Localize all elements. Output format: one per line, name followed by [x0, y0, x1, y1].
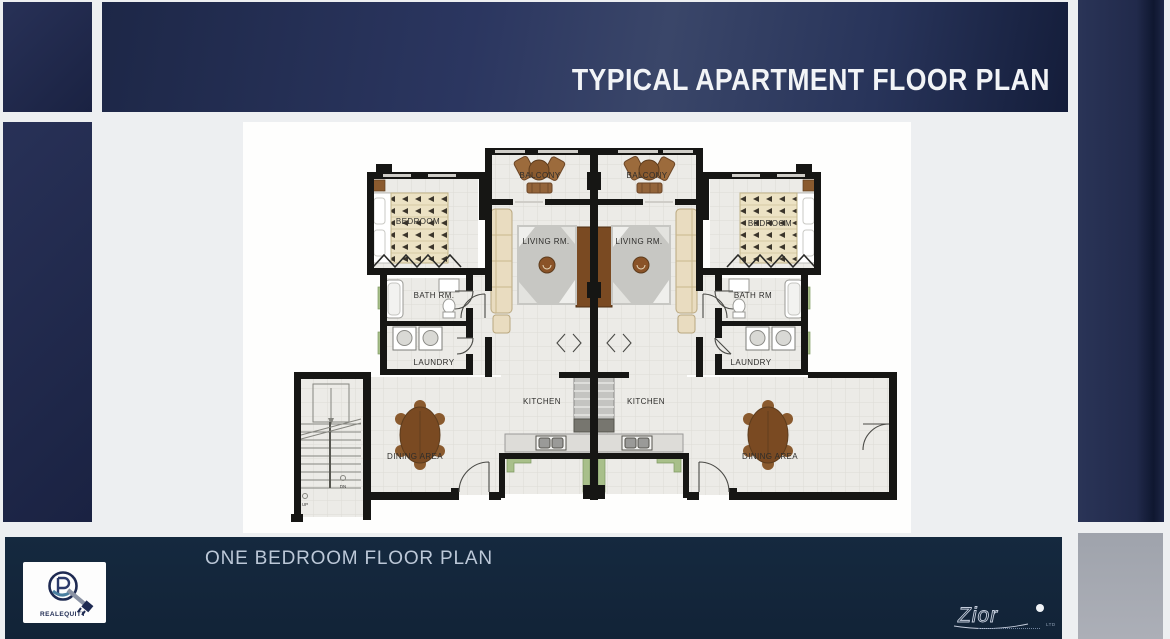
footer-band: ONE BEDROOM FLOOR PLAN	[5, 537, 1062, 639]
bottom-right-gray-block	[1078, 533, 1163, 639]
logo-wordmark: REALEQUITY	[40, 611, 86, 618]
presentation-slide: TYPICAL APARTMENT FLOOR PLAN	[0, 0, 1170, 639]
signature-caption-line	[978, 628, 1040, 629]
slide-caption: ONE BEDROOM FLOOR PLAN	[205, 548, 493, 570]
signature-mark: Zior LTD	[950, 596, 1065, 636]
label-kitchen-left: KITCHEN	[523, 397, 561, 406]
label-kitchen-right: KITCHEN	[627, 397, 665, 406]
left-accent-bar-bottom	[3, 122, 92, 522]
label-bedroom-right: BEDROOM	[748, 219, 792, 228]
builder-signature: Zior LTD	[950, 596, 1065, 636]
label-living-right: LIVING RM.	[615, 237, 662, 246]
right-accent-bar	[1078, 0, 1164, 522]
label-dining-left: DINING AREA	[387, 452, 443, 461]
label-laundry-left: LAUNDRY	[414, 358, 455, 367]
label-stairs-dn: DN	[340, 484, 347, 489]
label-laundry-right: LAUNDRY	[731, 358, 772, 367]
realequity-logo-icon: REALEQUITY	[25, 564, 104, 621]
label-bedroom-left: BEDROOM	[396, 217, 440, 226]
page-title: TYPICAL APARTMENT FLOOR PLAN	[572, 62, 1050, 98]
company-logo: REALEQUITY	[23, 562, 106, 623]
signature-suffix: LTD	[1046, 622, 1056, 627]
floor-plan-drawing: BALCONY BALCONY BEDROOM BEDROOM LIVING R…	[243, 122, 911, 533]
label-dining-right: DINING AREA	[742, 452, 798, 461]
label-bath-right: BATH RM	[734, 291, 772, 300]
label-balcony-right: BALCONY	[626, 171, 667, 180]
label-living-left: LIVING RM.	[522, 237, 569, 246]
label-bath-left: BATH RM.	[414, 291, 455, 300]
label-balcony-left: BALCONY	[519, 171, 560, 180]
signature-text: Zior	[957, 604, 998, 627]
floor-plan-canvas: BALCONY BALCONY BEDROOM BEDROOM LIVING R…	[243, 122, 911, 533]
label-stairs-up: UP	[302, 502, 308, 507]
left-accent-bar-top	[3, 2, 92, 112]
signature-dot	[1036, 604, 1044, 612]
title-banner: TYPICAL APARTMENT FLOOR PLAN	[102, 2, 1068, 112]
